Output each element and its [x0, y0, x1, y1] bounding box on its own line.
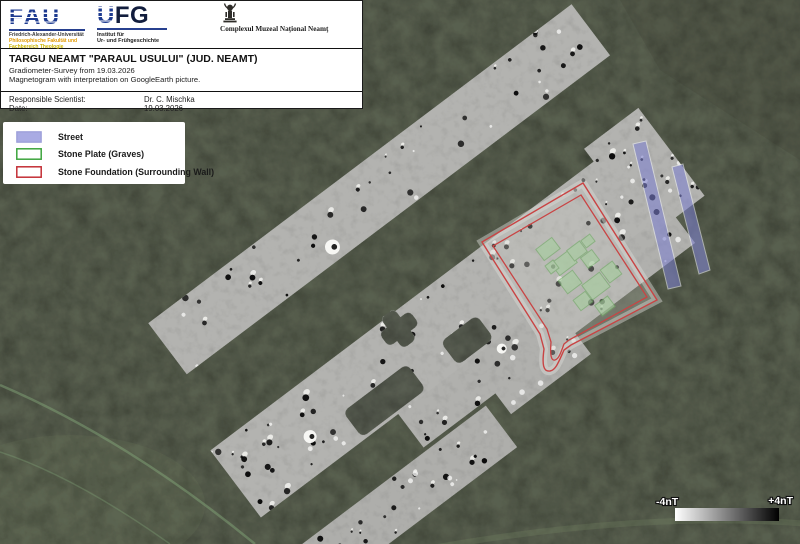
header-infobox: FAU Friedrich-Alexander-Universität Phil… [0, 0, 363, 109]
survey-subtitle-2: Magnetogram with interpretation on Googl… [9, 76, 354, 85]
legend-label-street: Street [58, 132, 83, 142]
museum-emblem-icon [222, 3, 238, 24]
fau-logo-underline [9, 29, 85, 31]
scientist-label: Responsible Scientist: [9, 95, 144, 105]
fau-logo-block: FAU Friedrich-Alexander-Universität Phil… [9, 5, 85, 50]
field-row-date: Date: 19.03.2026 [9, 104, 354, 114]
ufg-logo-u: U [97, 4, 115, 28]
legend-item-foundation: Stone Foundation (Surrounding Wall) [16, 163, 185, 181]
ufg-institute-line2: Ur- und Frühgeschichte [97, 38, 167, 44]
ufg-logo: UFG [97, 4, 167, 28]
scientist-value: Dr. C. Mischka [144, 95, 195, 105]
legend-label-graves: Stone Plate (Graves) [58, 149, 144, 159]
legend-label-foundation: Stone Foundation (Surrounding Wall) [58, 167, 214, 177]
survey-figure: -4nT +4nT FAU Friedrich-Alexander-Univer… [0, 0, 800, 544]
legend-box: Street Stone Plate (Graves) Stone Founda… [3, 122, 185, 184]
fau-logo: FAU [9, 5, 61, 28]
date-value: 19.03.2026 [144, 104, 183, 114]
field-row-scientist: Responsible Scientist: Dr. C. Mischka [9, 95, 354, 105]
museum-name: Complexul Muzeal Naţional Neamţ [220, 25, 358, 33]
ufg-logo-block: UFG Institut für Ur- und Frühgeschichte [97, 4, 167, 45]
metadata-section: Responsible Scientist: Dr. C. Mischka Da… [1, 91, 362, 114]
scalebar-gradient [675, 508, 779, 521]
museum-logo-block: Complexul Muzeal Naţional Neamţ [220, 3, 358, 33]
survey-title: TARGU NEAMT "PARAUL USULUI" (JUD. NEAMT) [9, 53, 354, 65]
scalebar-max-label: +4nT [768, 495, 793, 507]
legend-item-graves: Stone Plate (Graves) [16, 146, 185, 164]
title-section: TARGU NEAMT "PARAUL USULUI" (JUD. NEAMT)… [1, 49, 362, 85]
date-label: Date: [9, 104, 144, 114]
legend-item-street: Street [16, 128, 185, 146]
fau-department-name: Fachbereich Theologie [9, 45, 85, 51]
grave-swatch-icon [16, 148, 42, 160]
foundation-swatch-icon [16, 166, 42, 178]
street-swatch-icon [16, 131, 42, 143]
scalebar-min-label: -4nT [656, 496, 679, 508]
ufg-logo-fg: FG [115, 2, 149, 29]
logo-row: FAU Friedrich-Alexander-Universität Phil… [1, 1, 362, 49]
